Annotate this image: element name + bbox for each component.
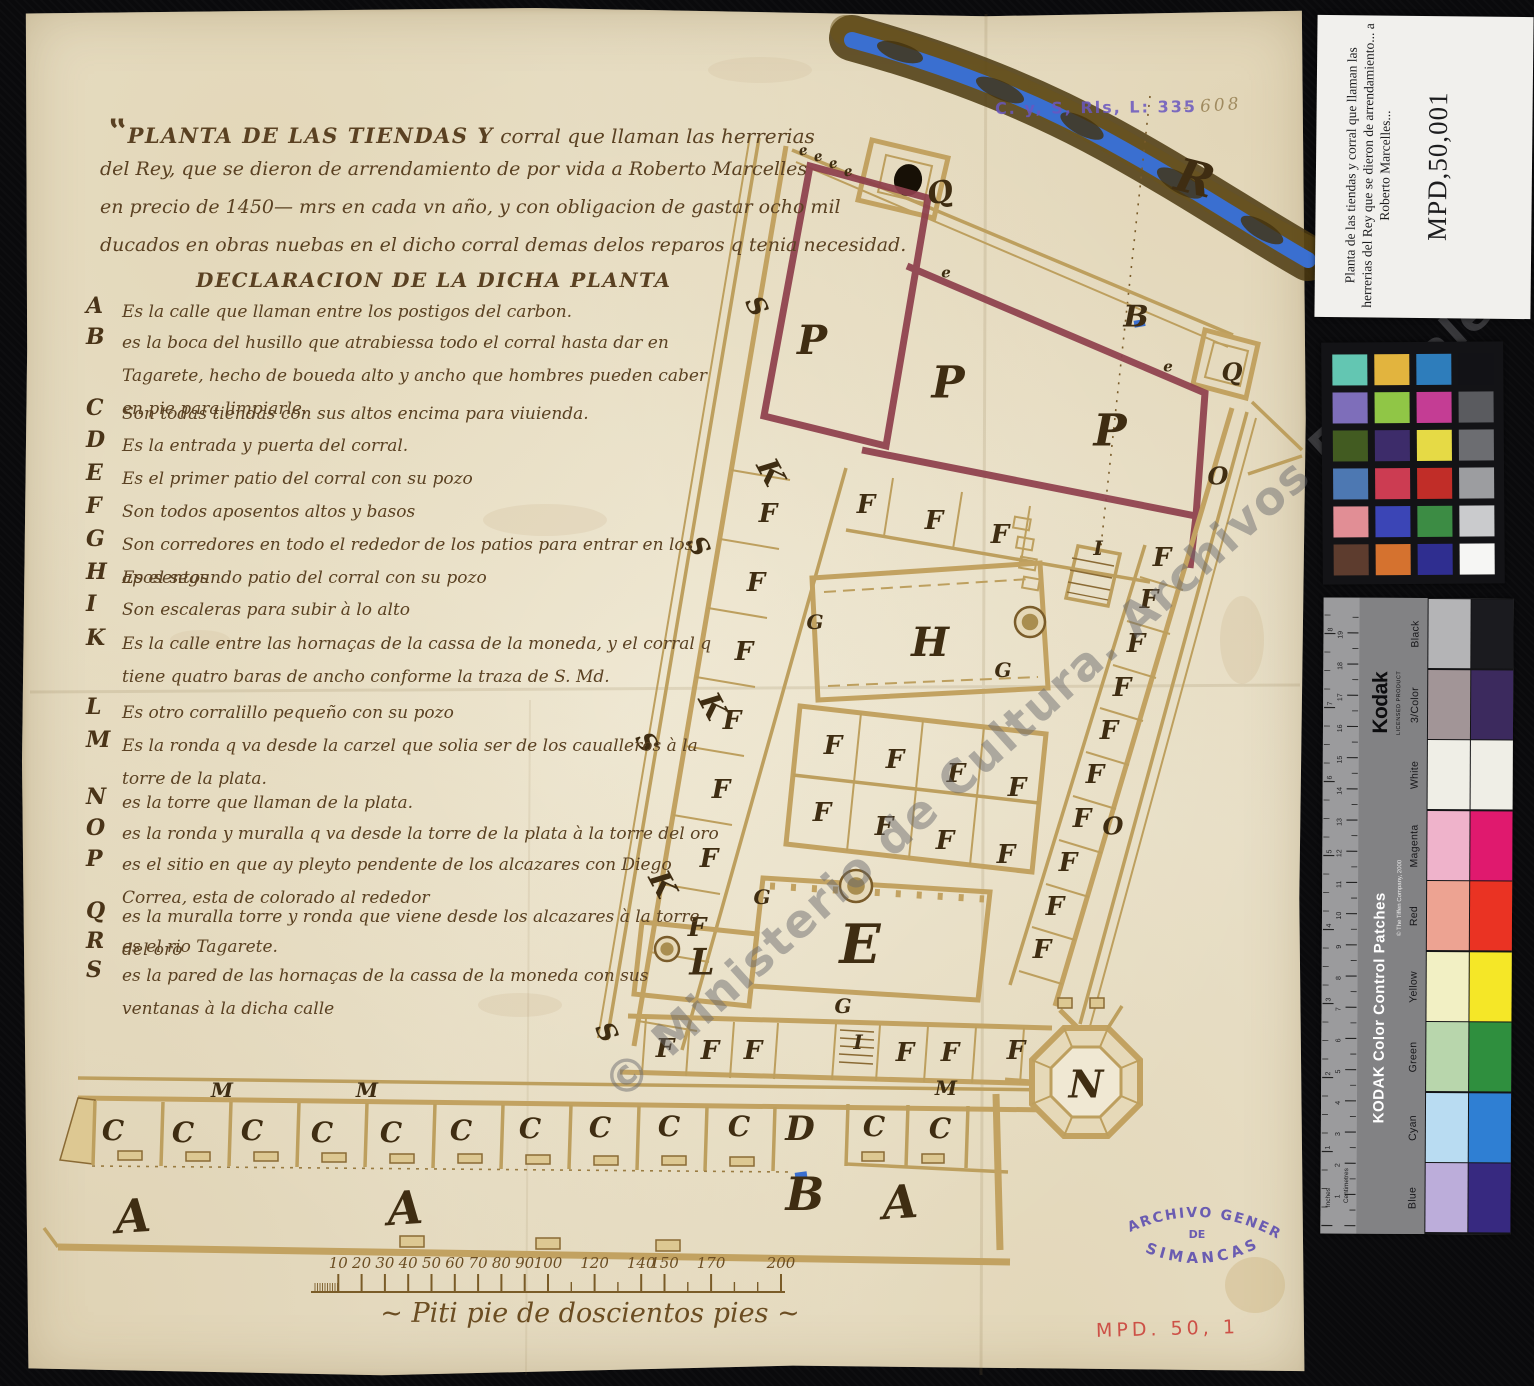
svg-text:15: 15 xyxy=(1337,756,1344,764)
legend-row-I: ISon escaleras para subir à lo alto xyxy=(86,594,726,627)
svg-text:13: 13 xyxy=(1336,818,1343,826)
checker-patch-8 xyxy=(1333,430,1368,461)
legend-row-K: KEs la calle entre las hornaças de la ca… xyxy=(86,628,726,694)
checker-patch-19 xyxy=(1459,505,1494,536)
kodak-patch-White xyxy=(1471,740,1513,809)
svg-text:12: 12 xyxy=(1336,849,1343,857)
svg-text:2: 2 xyxy=(1325,1071,1332,1075)
legend-text-I: Son escaleras para subir à lo alto xyxy=(122,594,726,627)
legend-key-R: R xyxy=(86,928,104,954)
legend-text-A: Es la calle que llaman entre los postigo… xyxy=(122,296,726,329)
legend-row-A: AEs la calle que llaman entre los postig… xyxy=(86,296,726,329)
legend-text-S: es la pared de las hornaças de la cassa … xyxy=(122,960,726,1026)
checker-patch-5 xyxy=(1375,392,1410,423)
archive-reference-stamp: C. y, S, Rls, L: 335 xyxy=(995,97,1197,118)
svg-text:7: 7 xyxy=(1327,701,1334,705)
svg-text:5: 5 xyxy=(1326,849,1333,853)
legend-text-H: Es el segundo patio del corral con su po… xyxy=(122,562,726,595)
checker-patch-1 xyxy=(1374,354,1409,385)
kodak-patch-light-Cyan xyxy=(1426,1093,1468,1162)
checker-patch-7 xyxy=(1459,391,1494,422)
legend-key-M: M xyxy=(86,727,110,753)
ruler-centimetres-label: Centimetres xyxy=(1343,1168,1350,1203)
manuscript-title-line4: ducados en obras nuebas en el dicho corr… xyxy=(100,234,906,256)
kodak-copyright: © The Tiffen Company, 2000 xyxy=(1397,860,1403,936)
kodak-ruler: 1234567891011121314151617181912345678 In… xyxy=(1320,598,1359,1234)
legend-text-E: Es el primer patio del corral con su poz… xyxy=(122,463,726,496)
kodak-patch-light-3/Color xyxy=(1428,670,1470,739)
label-card-id: MPD,50,001 xyxy=(1422,91,1455,241)
checker-patch-23 xyxy=(1460,543,1495,574)
legend-row-H: HEs el segundo patio del corral con su p… xyxy=(86,562,726,595)
svg-text:1: 1 xyxy=(1325,1145,1332,1149)
legend-key-O: O xyxy=(86,815,105,841)
legend-key-G: G xyxy=(86,526,105,552)
kodak-patches xyxy=(1424,598,1513,1234)
svg-text:5: 5 xyxy=(1335,1070,1342,1074)
legend-row-C: CSon todas tiendas con sus altos encima … xyxy=(86,398,726,431)
svg-text:9: 9 xyxy=(1336,945,1343,949)
manuscript-title-line3: en precio de 1450— mrs en cada vn año, y… xyxy=(100,196,841,218)
legend-text-N: es la torre que llaman de la plata. xyxy=(122,787,726,820)
kodak-patch-name-Black: Black xyxy=(1409,620,1421,647)
legend-row-L: LEs otro corralillo pequeño con su pozo xyxy=(86,697,726,730)
svg-text:3: 3 xyxy=(1326,997,1333,1001)
svg-text:10: 10 xyxy=(1336,912,1343,920)
checker-patch-22 xyxy=(1418,544,1453,575)
checker-patch-9 xyxy=(1375,430,1410,461)
legend-key-F: F xyxy=(86,493,102,519)
checker-patch-10 xyxy=(1417,430,1452,461)
checker-patch-4 xyxy=(1333,392,1368,423)
svg-text:8: 8 xyxy=(1327,627,1334,631)
kodak-brand: Kodak xyxy=(1369,672,1393,734)
legend-text-D: Es la entrada y puerta del corral. xyxy=(122,430,726,463)
checker-patch-15 xyxy=(1459,467,1494,498)
legend-key-N: N xyxy=(86,784,106,810)
svg-text:1: 1 xyxy=(1335,1194,1342,1198)
legend-key-E: E xyxy=(86,460,103,486)
kodak-patch-Red xyxy=(1470,881,1512,950)
checker-patch-11 xyxy=(1459,429,1494,460)
legend-text-K: Es la calle entre las hornaças de la cas… xyxy=(122,628,726,694)
scanned-document-stage: 102030405060708090100120140150170200 RBQ… xyxy=(0,0,1534,1386)
kodak-patch-Magenta xyxy=(1470,811,1512,880)
kodak-patch-light-Blue xyxy=(1425,1163,1467,1232)
kodak-patch-name-Blue: Blue xyxy=(1406,1187,1418,1209)
checker-patch-6 xyxy=(1417,392,1452,423)
svg-text:6: 6 xyxy=(1327,775,1334,779)
simancas-round-stamp: ARCHIVO GENERAL DE SIMANCAS xyxy=(1106,1190,1288,1282)
checker-patch-16 xyxy=(1333,506,1368,537)
archive-label-card: Planta de las tiendas y corral que llama… xyxy=(1314,15,1533,319)
kodak-patch-light-Red xyxy=(1427,881,1469,950)
kodak-patch-Blue xyxy=(1468,1163,1510,1232)
svg-text:2: 2 xyxy=(1335,1163,1342,1167)
checker-patch-13 xyxy=(1375,468,1410,499)
title-initial: ‟ xyxy=(108,112,128,152)
scale-bar-caption: ~ Piti pie de doscientos pies ~ xyxy=(360,1298,820,1329)
kodak-patch-light-Green xyxy=(1426,1022,1468,1091)
kodak-patch-Cyan xyxy=(1469,1093,1511,1162)
kodak-patch-Yellow xyxy=(1469,952,1511,1021)
legend-row-E: EEs el primer patio del corral con su po… xyxy=(86,463,726,496)
kodak-color-control-strip: 1234567891011121314151617181912345678 In… xyxy=(1320,598,1513,1235)
kodak-patch-name-Red: Red xyxy=(1408,906,1420,926)
manuscript-title-line2: del Rey, que se dieron de arrendamiento … xyxy=(100,158,807,180)
legend-key-H: H xyxy=(86,559,107,585)
pencil-number: - 608 xyxy=(1182,94,1242,118)
kodak-patch-name-3/Color: 3/Color xyxy=(1409,686,1421,722)
svg-text:4: 4 xyxy=(1326,923,1333,927)
svg-text:3: 3 xyxy=(1335,1132,1342,1136)
kodak-patch-light-Magenta xyxy=(1427,811,1469,880)
manuscript-title-line1: ‟PLANTA DE LAS TIENDAS Y corral que llam… xyxy=(108,112,815,152)
label-card-title: Planta de las tiendas y corral que llama… xyxy=(1341,23,1395,308)
legend-text-F: Son todos aposentos altos y basos xyxy=(122,496,726,529)
checker-patch-17 xyxy=(1375,506,1410,537)
declaration-heading: DECLARACION DE LA DICHA PLANTA xyxy=(196,268,671,292)
svg-text:6: 6 xyxy=(1335,1038,1342,1042)
kodak-patch-name-Yellow: Yellow xyxy=(1408,971,1420,1003)
legend-row-D: DEs la entrada y puerta del corral. xyxy=(86,430,726,463)
kodak-patch-Black xyxy=(1471,599,1513,668)
kodak-title: KODAK Color Control Patches xyxy=(1370,892,1388,1123)
ruler-inches-label: Inches xyxy=(1325,1188,1332,1207)
svg-text:17: 17 xyxy=(1337,693,1344,701)
legend-text-C: Son todas tiendas con sus altos encima p… xyxy=(122,398,726,431)
checker-patch-18 xyxy=(1417,506,1452,537)
legend-key-A: A xyxy=(86,293,103,319)
svg-text:18: 18 xyxy=(1337,662,1344,670)
legend-key-K: K xyxy=(86,625,105,651)
kodak-patch-name-Cyan: Cyan xyxy=(1407,1115,1419,1141)
svg-text:19: 19 xyxy=(1337,631,1344,639)
svg-text:4: 4 xyxy=(1335,1101,1342,1105)
legend-key-S: S xyxy=(86,957,102,983)
accession-number-red: MPD. 50, 1 xyxy=(1096,1316,1239,1342)
svg-text:16: 16 xyxy=(1337,724,1344,732)
svg-text:11: 11 xyxy=(1336,881,1343,888)
svg-text:DE: DE xyxy=(1189,1228,1206,1241)
kodak-label-column: Kodak LICENSED PRODUCT KODAK Color Contr… xyxy=(1356,598,1427,1234)
legend-row-S: Ses la pared de las hornaças de la cassa… xyxy=(86,960,726,1026)
checker-patch-14 xyxy=(1417,468,1452,499)
kodak-patch-light-White xyxy=(1428,740,1470,809)
legend-key-L: L xyxy=(86,694,101,720)
kodak-licensed: LICENSED PRODUCT xyxy=(1396,671,1402,735)
checker-patch-0 xyxy=(1332,354,1367,385)
kodak-patch-light-Yellow xyxy=(1426,952,1468,1021)
color-checker-card xyxy=(1321,341,1505,584)
svg-text:14: 14 xyxy=(1337,787,1344,795)
legend-key-P: P xyxy=(86,846,103,872)
color-checker-grid xyxy=(1332,353,1495,575)
checker-patch-12 xyxy=(1333,468,1368,499)
legend-key-C: C xyxy=(86,395,104,421)
svg-text:8: 8 xyxy=(1336,976,1343,980)
checker-patch-3 xyxy=(1458,353,1493,384)
kodak-patch-light-Black xyxy=(1428,599,1470,668)
legend-key-D: D xyxy=(86,427,105,453)
kodak-patch-Green xyxy=(1469,1022,1511,1091)
legend-key-B: B xyxy=(86,324,105,350)
legend-row-O: Oes la ronda y muralla q va desde la tor… xyxy=(86,818,726,851)
kodak-patch-name-Green: Green xyxy=(1407,1042,1419,1073)
checker-patch-20 xyxy=(1334,544,1369,575)
legend-key-Q: Q xyxy=(86,898,105,924)
legend-row-N: Nes la torre que llaman de la plata. xyxy=(86,787,726,820)
legend-key-I: I xyxy=(86,591,96,617)
legend-text-O: es la ronda y muralla q va desde la torr… xyxy=(122,818,726,851)
kodak-patch-3/Color xyxy=(1471,670,1513,739)
kodak-patch-name-Magenta: Magenta xyxy=(1408,824,1420,867)
legend-text-L: Es otro corralillo pequeño con su pozo xyxy=(122,697,726,730)
kodak-patch-name-White: White xyxy=(1409,761,1421,789)
legend-row-F: FSon todos aposentos altos y basos xyxy=(86,496,726,529)
checker-patch-2 xyxy=(1416,354,1451,385)
checker-patch-21 xyxy=(1376,544,1411,575)
svg-text:7: 7 xyxy=(1336,1007,1343,1011)
